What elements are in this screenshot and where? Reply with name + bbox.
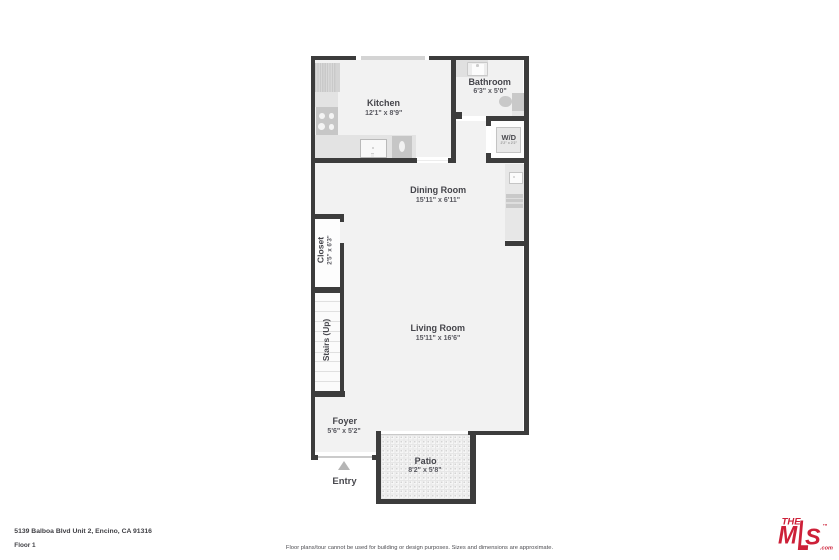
svg-text:M: M <box>778 521 798 549</box>
svg-text:™: ™ <box>823 524 828 530</box>
svg-text:.com: .com <box>820 546 833 552</box>
svg-text:S: S <box>805 523 821 549</box>
